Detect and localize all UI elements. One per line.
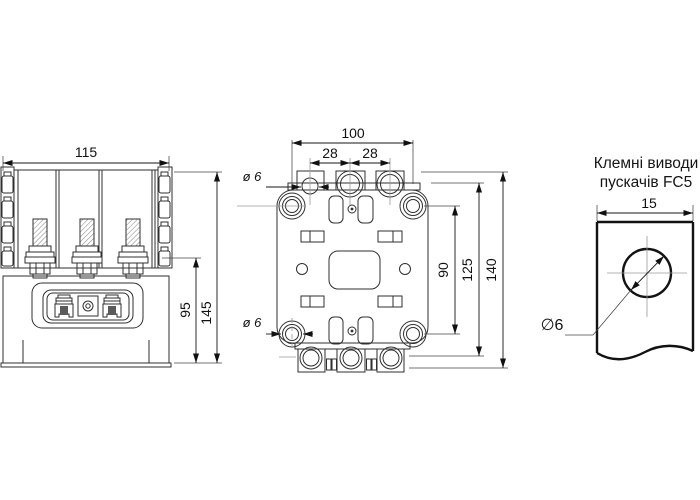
dim-label-mount-width: 100 — [341, 125, 365, 141]
dim-label-front-lower-height: 95 — [177, 302, 193, 318]
technical-drawing-page: 115 145 95 — [0, 0, 700, 500]
canvas-background — [0, 0, 700, 500]
dim-label-pitch-right: 28 — [362, 145, 378, 161]
terminal-view-title-line1: Клемні виводи — [594, 155, 699, 172]
dim-label-hole-span: 90 — [435, 262, 451, 278]
dim-label-terminal-hole-dia: ∅6 — [541, 317, 564, 334]
dim-label-pitch-left: 28 — [322, 145, 338, 161]
dim-label-body-height: 125 — [459, 258, 475, 282]
dim-label-mount-overall-height: 140 — [483, 258, 499, 282]
contactor-dimension-drawing: 115 145 95 — [0, 0, 700, 500]
terminal-view-title-line2: пускачів FC5 — [600, 174, 692, 191]
dim-label-front-height: 145 — [198, 301, 214, 325]
terminal-bolts — [25, 219, 148, 278]
dim-label-front-width: 115 — [75, 144, 98, 160]
dim-label-bottom-hole-dia: ø 6 — [243, 315, 263, 330]
dim-label-terminal-width: 15 — [641, 195, 657, 211]
dim-label-top-hole-dia: ø 6 — [243, 169, 263, 184]
